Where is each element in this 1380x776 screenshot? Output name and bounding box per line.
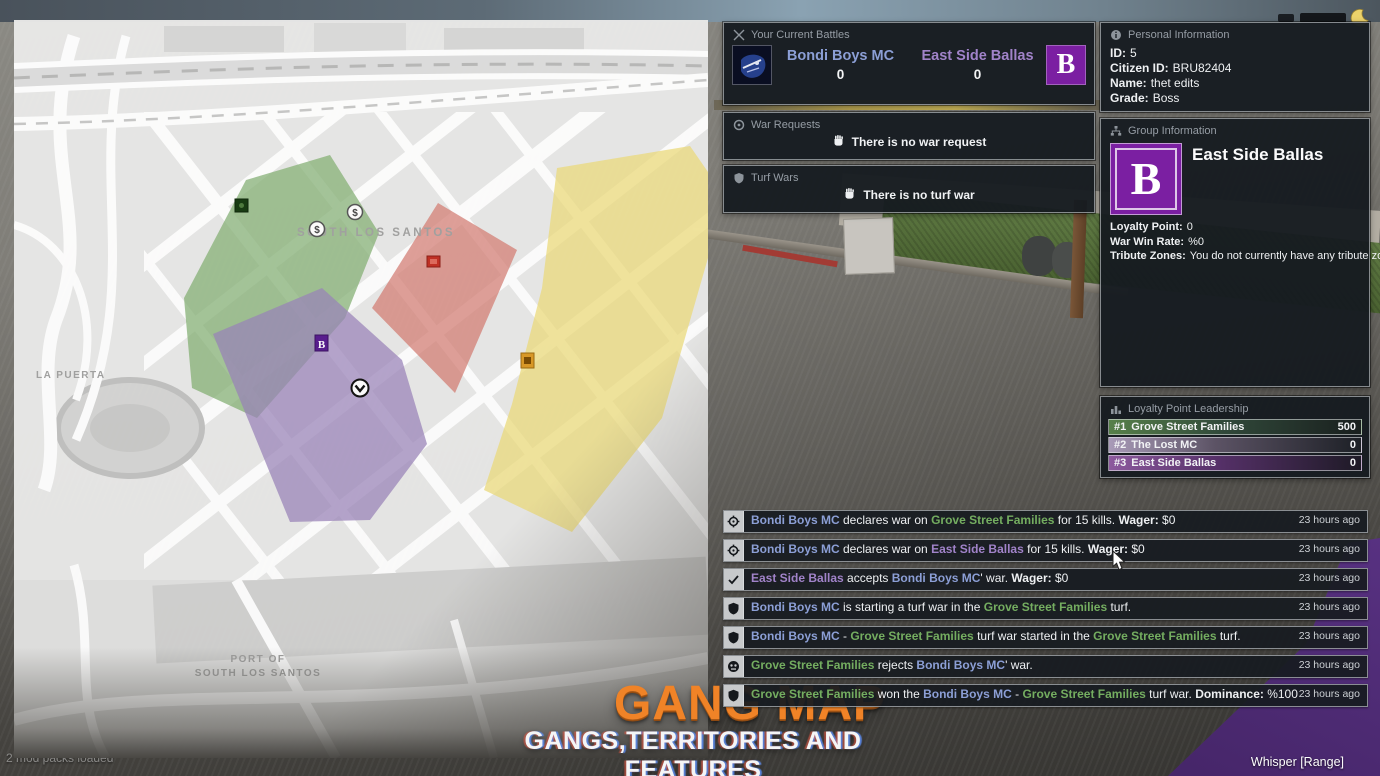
turf-wars-title: Turf Wars <box>751 172 798 184</box>
personal-information-panel: Personal Information ID:5Citizen ID:BRU8… <box>1100 22 1370 112</box>
ballas-logo-letter: B <box>1057 51 1076 79</box>
leadership-title: Loyalty Point Leadership <box>1128 403 1248 415</box>
sky-strip <box>0 0 1380 22</box>
current-battles-panel: Your Current Battles Bondi Boys MC 0 Eas… <box>723 22 1095 105</box>
red-territory-marker[interactable] <box>427 256 440 267</box>
log-timestamp: 23 hours ago <box>1299 540 1367 561</box>
group-name: East Side Ballas <box>1192 145 1323 165</box>
war-requests-panel: War Requests There is no war request <box>723 112 1095 160</box>
info-field: War Win Rate:%0 <box>1110 235 1360 250</box>
log-message: Bondi Boys MC is starting a turf war in … <box>744 598 1299 619</box>
svg-text:B: B <box>318 339 326 351</box>
fist-icon <box>843 187 856 203</box>
leaderboard-row: #3East Side Ballas0 <box>1108 455 1362 471</box>
log-timestamp: 23 hours ago <box>1299 511 1367 532</box>
svg-text:$: $ <box>314 225 320 236</box>
shield-icon <box>724 627 744 648</box>
war-log-row: Bondi Boys MC is starting a turf war in … <box>723 597 1368 620</box>
info-field: Tribute Zones:You do not currently have … <box>1110 249 1360 264</box>
page-subtitle: GANGS,TERRITORIES AND FEATURES <box>473 727 913 776</box>
info-field: Loyalty Point:0 <box>1110 220 1360 235</box>
war-log-row: Bondi Boys MC declares war on East Side … <box>723 539 1368 562</box>
war-log-row: Bondi Boys MC declares war on Grove Stre… <box>723 510 1368 533</box>
mouse-cursor <box>1112 551 1127 571</box>
trash-bag <box>1022 236 1056 276</box>
log-timestamp: 23 hours ago <box>1299 598 1367 619</box>
log-message: Bondi Boys MC declares war on East Side … <box>744 540 1299 561</box>
log-message: Bondi Boys MC - Grove Street Families tu… <box>744 627 1299 648</box>
face-icon <box>724 656 744 677</box>
utility-box <box>843 217 895 275</box>
shield-icon <box>724 598 744 619</box>
log-message: Bondi Boys MC declares war on Grove Stre… <box>744 511 1299 532</box>
log-message: East Side Ballas accepts Bondi Boys MC' … <box>744 569 1299 590</box>
battle-right-score: 0 <box>909 67 1046 82</box>
battle-left-side: Bondi Boys MC 0 <box>772 48 909 82</box>
info-field: Citizen ID:BRU82404 <box>1110 61 1360 76</box>
territory-map[interactable]: SOUTH LOS SANTOS LA PUERTA PORT OF SOUTH… <box>14 20 708 758</box>
battle-left-score: 0 <box>772 67 909 82</box>
log-message: Grove Street Families rejects Bondi Boys… <box>744 656 1299 677</box>
grove-territory-marker[interactable] <box>235 199 248 212</box>
info-icon <box>1110 29 1122 41</box>
loyalty-leadership-panel: Loyalty Point Leadership #1Grove Street … <box>1100 396 1370 478</box>
waypoint-marker-icon[interactable] <box>352 380 369 397</box>
personal-fields: ID:5Citizen ID:BRU82404Name:thet editsGr… <box>1101 43 1369 109</box>
fist-icon <box>832 134 845 150</box>
group-logo-letter: B <box>1131 156 1162 202</box>
group-info-title: Group Information <box>1128 125 1217 137</box>
battles-title: Your Current Battles <box>751 29 850 41</box>
shield-icon <box>724 685 744 706</box>
war-log-row: Grove Street Families rejects Bondi Boys… <box>723 655 1368 678</box>
east-side-ballas-logo: B <box>1046 45 1086 85</box>
info-field: ID:5 <box>1110 46 1360 61</box>
hud-status-bar <box>1278 14 1294 22</box>
voice-range-indicator: Whisper [Range] <box>1251 755 1344 769</box>
log-timestamp: 23 hours ago <box>1299 685 1367 706</box>
info-field: Name:thet edits <box>1110 76 1360 91</box>
leaderboard-row: #2The Lost MC0 <box>1108 437 1362 453</box>
war-log-row: Bondi Boys MC - Grove Street Families tu… <box>723 626 1368 649</box>
war-requests-title: War Requests <box>751 119 820 131</box>
war-log-row: East Side Ballas accepts Bondi Boys MC' … <box>723 568 1368 591</box>
svg-text:$: $ <box>352 208 358 219</box>
crossed-swords-icon <box>733 29 745 41</box>
bondi-boys-logo <box>732 45 772 85</box>
log-message: Grove Street Families won the Bondi Boys… <box>744 685 1299 706</box>
leaderboard-row: #1Grove Street Families500 <box>1108 419 1362 435</box>
log-timestamp: 23 hours ago <box>1299 656 1367 677</box>
personal-info-title: Personal Information <box>1128 29 1230 41</box>
group-logo: B <box>1110 143 1182 215</box>
info-field: Grade:Boss <box>1110 91 1360 106</box>
shop-icon[interactable]: $ <box>310 222 325 237</box>
shield-icon <box>733 172 745 184</box>
label-la-puerta: LA PUERTA <box>36 370 106 381</box>
turf-wars-empty-text: There is no turf war <box>863 188 974 202</box>
log-timestamp: 23 hours ago <box>1299 569 1367 590</box>
log-timestamp: 23 hours ago <box>1299 627 1367 648</box>
battle-right-side: East Side Ballas 0 <box>909 48 1046 82</box>
war-log-row: Grove Street Families won the Bondi Boys… <box>723 684 1368 707</box>
ballas-territory-marker[interactable]: B <box>315 335 328 351</box>
org-chart-icon <box>1110 125 1122 137</box>
battle-right-name: East Side Ballas <box>909 48 1046 64</box>
label-port-2: SOUTH LOS SANTOS <box>195 668 322 679</box>
yellow-territory-marker[interactable] <box>521 353 534 368</box>
battle-left-name: Bondi Boys MC <box>772 48 909 64</box>
crosshair-icon <box>724 511 744 532</box>
war-log-list: Bondi Boys MC declares war on Grove Stre… <box>723 510 1368 713</box>
group-fields: Loyalty Point:0War Win Rate:%0Tribute Zo… <box>1101 217 1369 267</box>
group-information-panel: Group Information B East Side Ballas Loy… <box>1100 118 1370 387</box>
war-requests-empty-text: There is no war request <box>852 135 987 149</box>
bar-chart-icon <box>1110 403 1122 415</box>
shop-icon[interactable]: $ <box>348 205 363 220</box>
gang-map-screen: SOUTH LOS SANTOS LA PUERTA PORT OF SOUTH… <box>0 0 1380 776</box>
check-icon <box>724 569 744 590</box>
turf-wars-panel: Turf Wars There is no turf war <box>723 165 1095 213</box>
crosshair-icon <box>724 540 744 561</box>
label-port-1: PORT OF <box>231 654 286 665</box>
leaderboard-rows: #1Grove Street Families500#2The Lost MC0… <box>1101 417 1369 475</box>
target-ring-icon <box>733 119 745 131</box>
